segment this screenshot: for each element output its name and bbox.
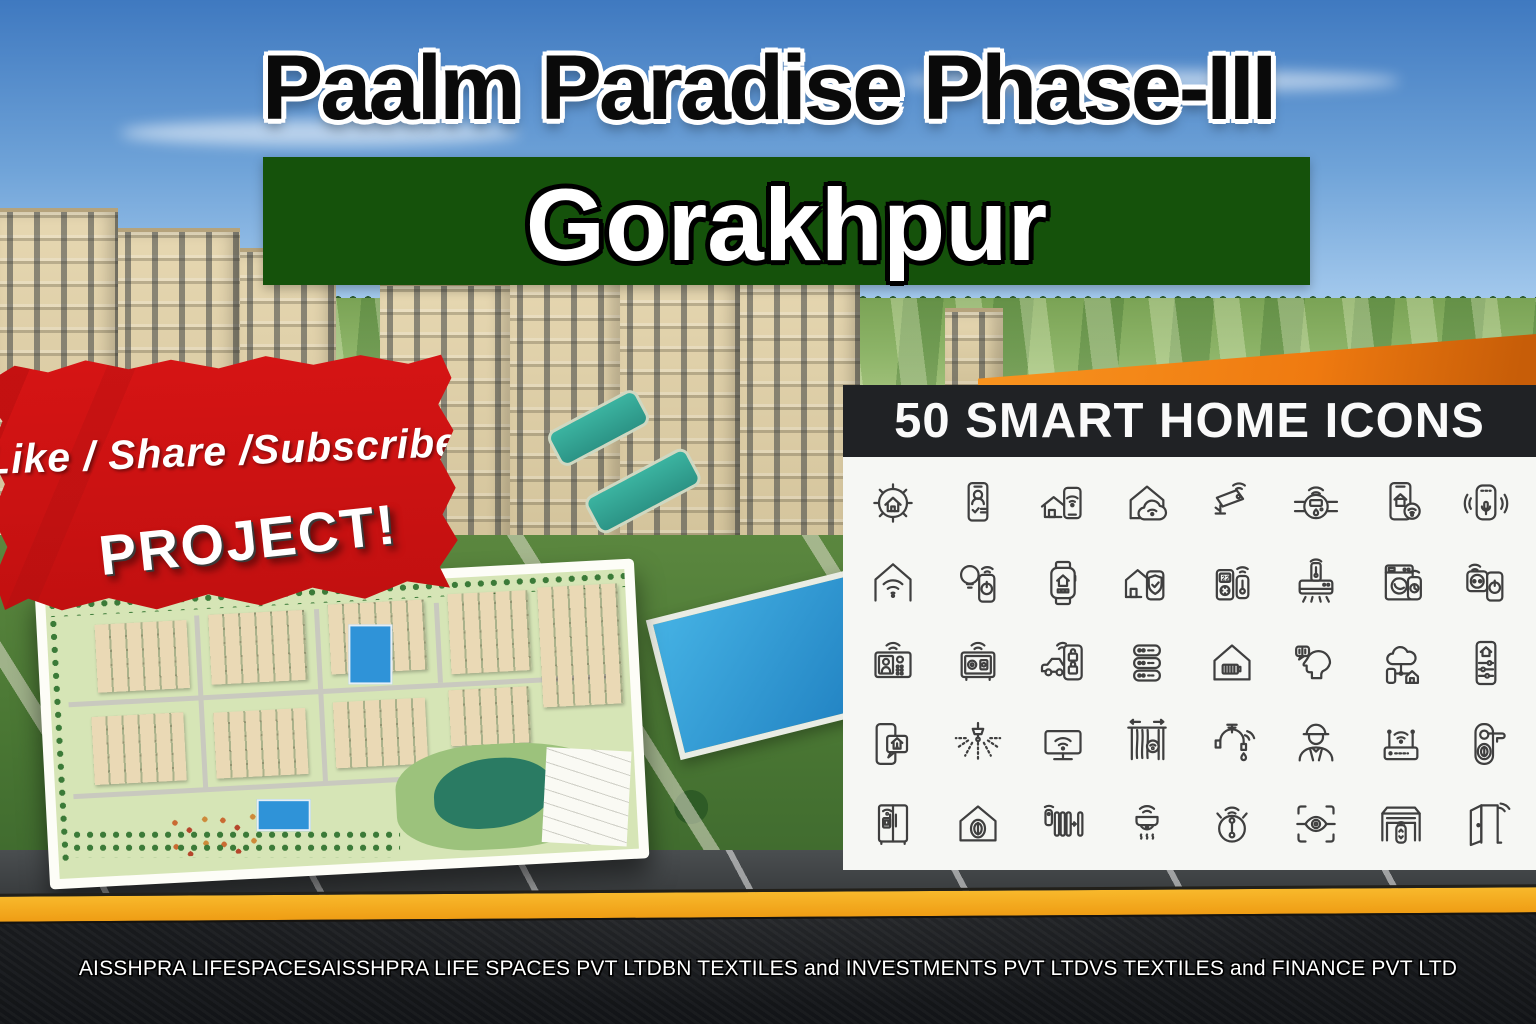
smart-safe-icon — [936, 623, 1021, 703]
car-phone-lock-icon — [1020, 623, 1105, 703]
home-battery-icon — [1190, 623, 1275, 703]
plan-unbuilt-area — [542, 747, 632, 846]
thumbnail-poster: Paalm Paradise Phase-III Gorakhpur Like … — [0, 0, 1536, 1024]
icons-grid — [843, 457, 1536, 870]
eye-scan-icon — [1274, 784, 1359, 864]
video-intercom-icon — [851, 623, 936, 703]
home-wifi-icon — [851, 543, 936, 623]
smart-curtains-icon — [1105, 704, 1190, 784]
phone-home-alert-icon — [851, 704, 936, 784]
plan-pool — [348, 624, 392, 684]
icons-panel-title: 50 SMART HOME ICONS — [894, 393, 1485, 449]
plan-building-cluster — [447, 590, 531, 674]
phone-home-sliders-icon — [1443, 623, 1528, 703]
home-phone-wifi-icon — [1020, 463, 1105, 543]
master-plan-sheet — [35, 559, 650, 890]
voice-assistant-icon — [1274, 623, 1359, 703]
master-plan-drawing — [45, 569, 639, 879]
like-share-subscribe-text: Like / Share /Subscribe — [0, 419, 460, 484]
home-shield-phone-icon — [1105, 543, 1190, 623]
smart-faucet-icon — [1190, 704, 1275, 784]
smart-fridge-icon — [851, 784, 936, 864]
smart-door-icon — [1443, 784, 1528, 864]
garage-remote-icon — [1359, 784, 1444, 864]
plan-building-cluster — [91, 712, 186, 785]
sprinkler-icon — [936, 704, 1021, 784]
plan-building-cluster — [333, 698, 428, 769]
washing-machine-phone-icon — [1359, 543, 1444, 623]
cta-banner[interactable]: Like / Share /Subscribe PROJECT! — [0, 341, 465, 621]
cloud-network-icon — [1359, 623, 1444, 703]
project-text: PROJECT! — [96, 491, 400, 588]
page-title: Paalm Paradise Phase-III — [0, 36, 1536, 141]
air-conditioner-icon — [1274, 543, 1359, 623]
smart-speaker-icon — [1443, 463, 1528, 543]
location-banner: Gorakhpur — [263, 157, 1310, 285]
smart-home-gear-icon — [851, 463, 936, 543]
plan-tree-row — [70, 828, 400, 858]
smart-meter-icon — [1274, 463, 1359, 543]
plan-road — [434, 603, 443, 683]
thermostat-remote-icon — [1190, 543, 1275, 623]
footer-bar: AISSHPRA LIFESPACESAISSHPRA LIFE SPACES … — [0, 905, 1536, 1024]
plan-building-cluster — [537, 583, 623, 707]
cctv-camera-icon — [1190, 463, 1275, 543]
phone-home-wifi-icon — [1359, 463, 1444, 543]
wifi-router-icon — [1359, 704, 1444, 784]
plan-tree-row — [46, 617, 73, 867]
phone-profile-check-icon — [936, 463, 1021, 543]
plan-building-cluster — [213, 708, 308, 779]
plan-building-cluster — [208, 610, 308, 685]
technician-icon — [1274, 704, 1359, 784]
home-cloud-wifi-icon — [1105, 463, 1190, 543]
smartwatch-home-icon — [1020, 543, 1105, 623]
robot-vacuum-icon — [1190, 784, 1275, 864]
smoke-detector-icon — [1105, 784, 1190, 864]
socket-phone-icon — [1443, 543, 1528, 623]
location-banner-text: Gorakhpur — [263, 167, 1310, 284]
server-rack-icon — [1105, 623, 1190, 703]
home-fingerprint-icon — [936, 784, 1021, 864]
footer-credits-text: AISSHPRA LIFESPACESAISSHPRA LIFE SPACES … — [0, 957, 1536, 981]
plan-building-cluster — [448, 686, 531, 746]
smart-tv-icon — [1020, 704, 1105, 784]
icons-panel-titlebar: 50 SMART HOME ICONS — [843, 385, 1536, 457]
radiator-remote-icon — [1020, 784, 1105, 864]
bulb-phone-icon — [936, 543, 1021, 623]
plan-building-cluster — [94, 620, 189, 693]
plan-road — [194, 615, 208, 791]
plan-road — [314, 609, 328, 785]
door-lock-fingerprint-icon — [1443, 704, 1528, 784]
